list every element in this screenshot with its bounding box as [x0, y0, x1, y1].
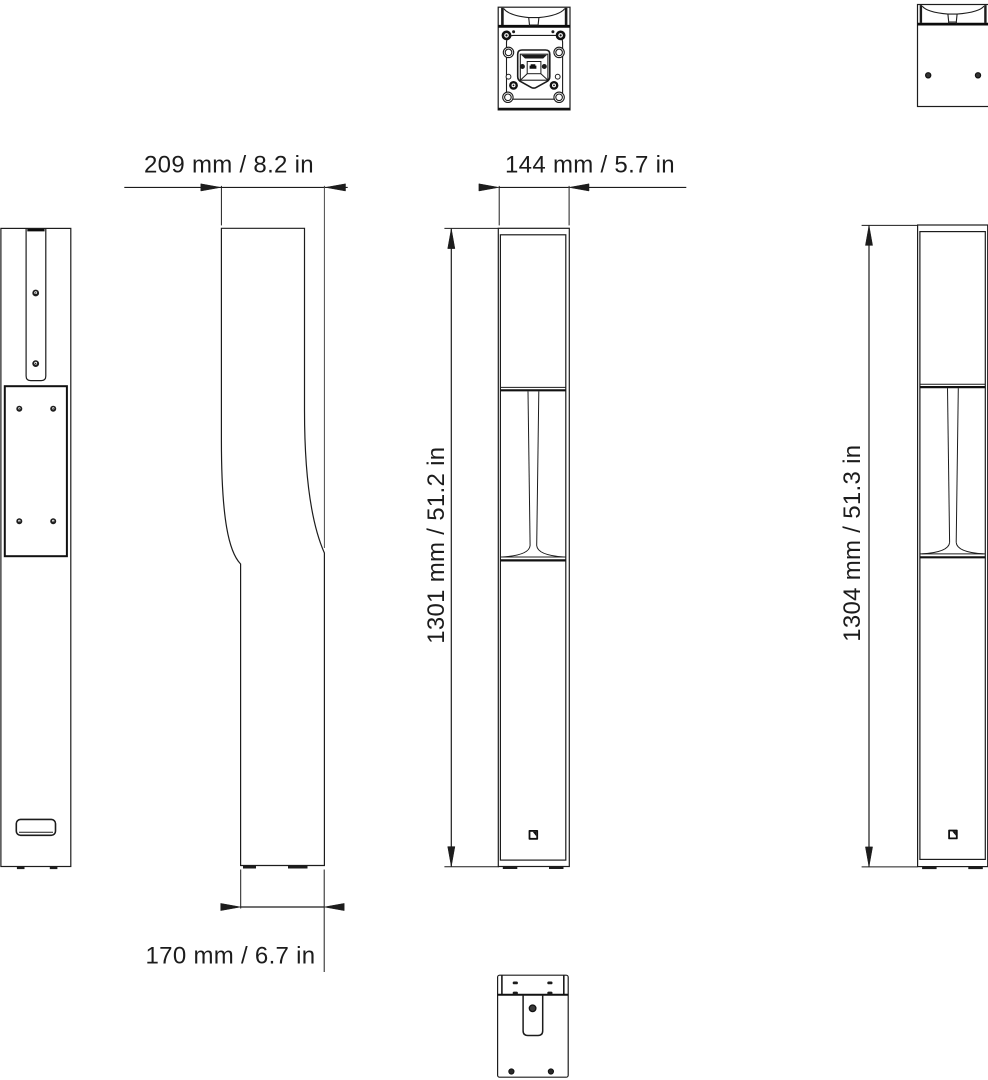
svg-text:144 mm / 5.7 in: 144 mm / 5.7 in: [505, 152, 675, 179]
svg-text:170 mm / 6.7 in: 170 mm / 6.7 in: [146, 943, 316, 970]
svg-text:1304 mm / 51.3 in: 1304 mm / 51.3 in: [839, 445, 866, 642]
svg-text:1301 mm / 51.2 in: 1301 mm / 51.2 in: [423, 447, 450, 644]
svg-text:209 mm / 8.2 in: 209 mm / 8.2 in: [144, 152, 314, 179]
